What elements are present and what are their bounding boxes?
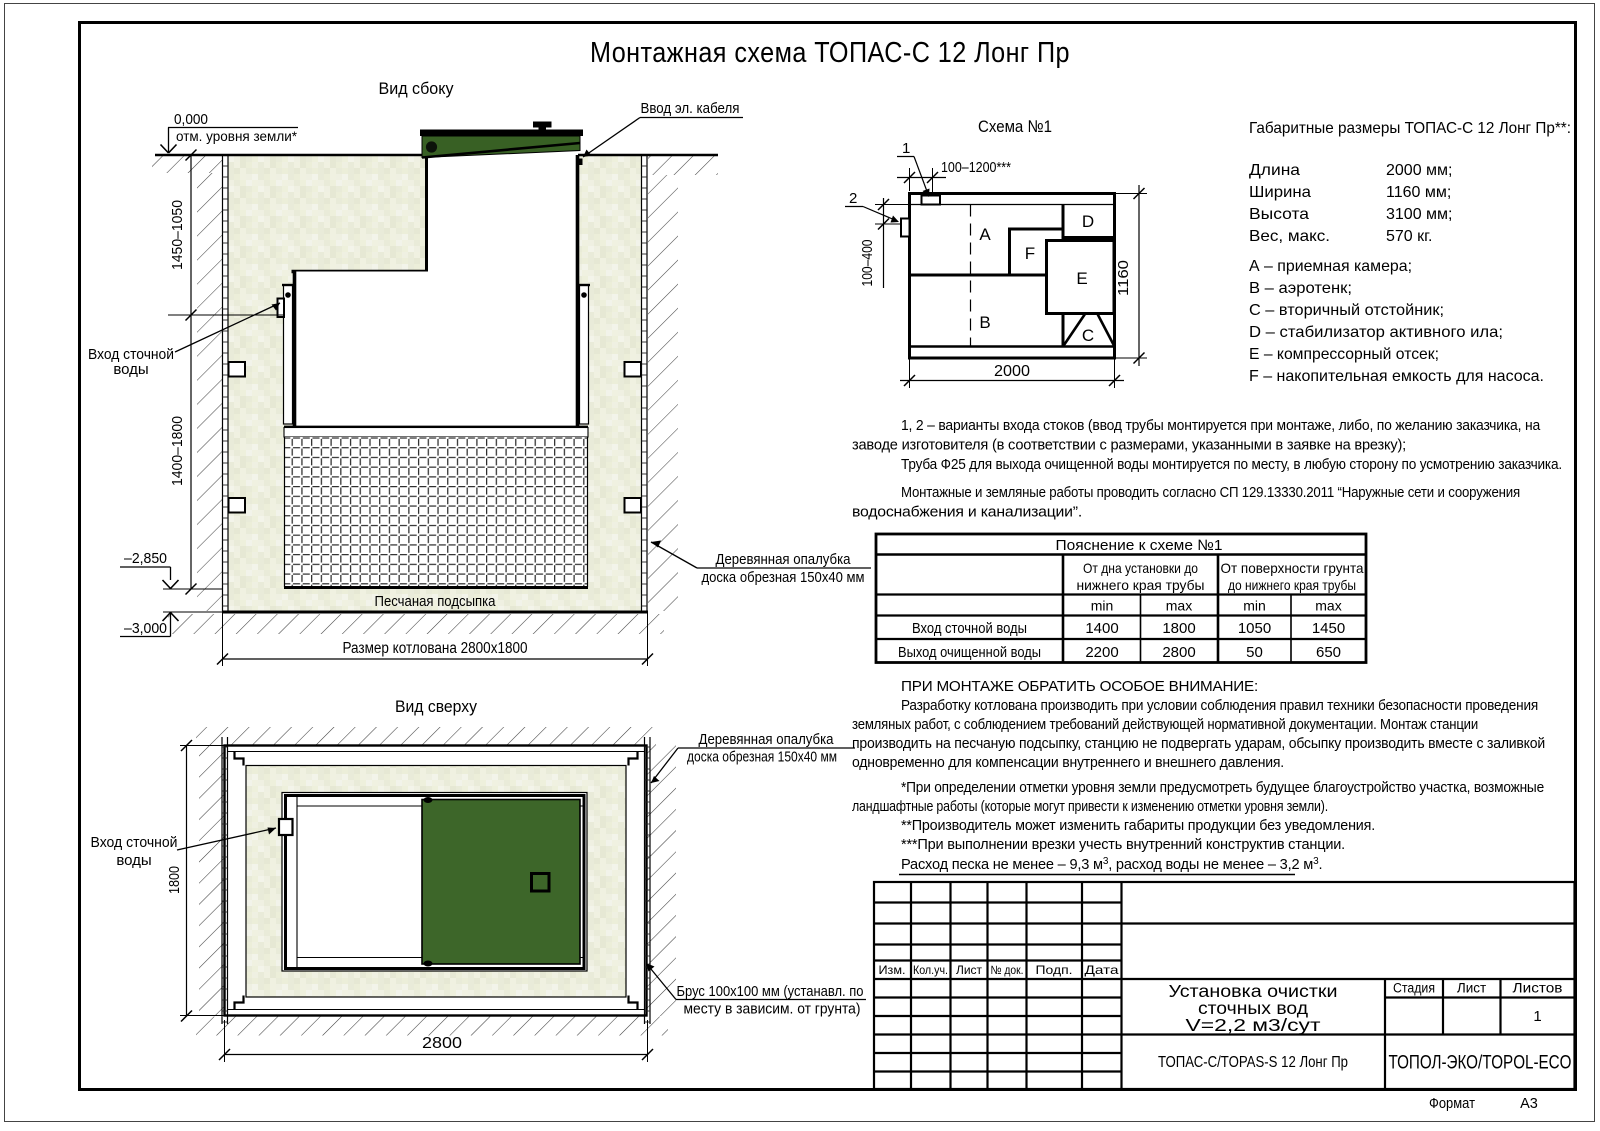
svg-text:1450: 1450 — [1312, 620, 1345, 637]
svg-text:Изм.: Изм. — [879, 963, 906, 977]
svg-text:одновременно для компенсации в: одновременно для компенсации внутреннего… — [852, 755, 1284, 771]
svg-text:D: D — [1082, 212, 1094, 231]
svg-text:Схема №1: Схема №1 — [978, 117, 1052, 136]
svg-text:2800: 2800 — [422, 1035, 462, 1052]
svg-text:воды: воды — [113, 361, 148, 378]
svg-text:Выход очищенной воды: Выход очищенной воды — [898, 644, 1041, 661]
svg-text:1800: 1800 — [166, 866, 183, 894]
svg-text:Пояснение к схеме №1: Пояснение к схеме №1 — [1056, 537, 1223, 554]
svg-text:Песчаная подсыпка: Песчаная подсыпка — [375, 593, 497, 610]
svg-text:Дата: Дата — [1085, 963, 1119, 977]
svg-text:Вид сбоку: Вид сбоку — [379, 79, 454, 98]
svg-text:1400: 1400 — [1085, 620, 1118, 637]
svg-text:Монтажные и земляные работы пр: Монтажные и земляные работы проводить со… — [901, 485, 1520, 501]
svg-text:**Производитель может изменить: **Производитель может изменить габариты … — [901, 818, 1375, 834]
svg-text:Формат: Формат — [1429, 1096, 1475, 1112]
svg-text:От дна установки до: От дна установки до — [1083, 560, 1198, 576]
svg-text:min: min — [1243, 598, 1266, 614]
svg-text:№ док.: № док. — [991, 963, 1024, 977]
svg-text:*При определении отметки уровн: *При определении отметки уровня земли пр… — [901, 780, 1544, 796]
svg-text:доска обрезная 150x40 мм: доска обрезная 150x40 мм — [687, 749, 837, 766]
svg-text:***При выполнении врезки учест: ***При выполнении врезки учесть внутренн… — [901, 837, 1345, 853]
svg-text:месту в зависим. от грунта): месту в зависим. от грунта) — [684, 1001, 861, 1018]
svg-text:доска обрезная 150x40 мм: доска обрезная 150x40 мм — [702, 569, 865, 586]
svg-text:земляных работ, с соблюдением: земляных работ, с соблюдением требований… — [852, 717, 1478, 733]
svg-text:max: max — [1315, 598, 1341, 614]
svg-text:Лист: Лист — [1457, 981, 1486, 996]
svg-text:Вид сверху: Вид сверху — [395, 697, 477, 716]
svg-text:V=2,2 м3/сут: V=2,2 м3/сут — [1186, 1015, 1321, 1035]
svg-text:–2,850: –2,850 — [124, 550, 167, 567]
svg-text:2000 мм;: 2000 мм; — [1386, 162, 1452, 179]
svg-text:B: B — [979, 313, 990, 332]
svg-text:100–1200***: 100–1200*** — [941, 159, 1011, 176]
svg-text:E: E — [1076, 269, 1087, 288]
svg-text:Кол.уч.: Кол.уч. — [913, 963, 948, 977]
svg-text:1050: 1050 — [1238, 620, 1271, 637]
svg-text:Ширина: Ширина — [1249, 184, 1311, 201]
svg-text:Монтажная схема ТОПАС-С 12 Лон: Монтажная схема ТОПАС-С 12 Лонг Пр — [590, 37, 1070, 69]
svg-text:воды: воды — [116, 852, 151, 869]
svg-text:Вход сточной воды: Вход сточной воды — [912, 620, 1027, 637]
svg-text:C: C — [1082, 326, 1094, 345]
svg-text:водоснабжения и канализации”.: водоснабжения и канализации”. — [852, 505, 1082, 521]
svg-text:Е – компрессорный отсек;: Е – компрессорный отсек; — [1249, 346, 1439, 363]
svg-text:ТОПАС-С/TOPAS-S 12 Лонг Пр: ТОПАС-С/TOPAS-S 12 Лонг Пр — [1158, 1054, 1348, 1071]
svg-text:2000: 2000 — [994, 363, 1030, 380]
svg-text:50: 50 — [1246, 644, 1263, 661]
svg-text:ТОПОЛ-ЭКО/TOPOL-ECO: ТОПОЛ-ЭКО/TOPOL-ECO — [1389, 1053, 1572, 1074]
svg-text:1800: 1800 — [1162, 620, 1195, 637]
svg-text:3100 мм;: 3100 мм; — [1386, 206, 1452, 223]
svg-text:Длина: Длина — [1249, 162, 1300, 179]
svg-text:1, 2 – варианты входа стоков: 1, 2 – варианты входа стоков (ввод трубы… — [901, 418, 1541, 434]
svg-text:570 кг.: 570 кг. — [1386, 228, 1432, 245]
svg-text:F – накопительная емкость для: F – накопительная емкость для насоса. — [1249, 368, 1544, 385]
svg-text:А – приемная камера;: А – приемная камера; — [1249, 258, 1412, 275]
svg-text:ПРИ МОНТАЖЕ ОБРАТИТЬ ОСОБОЕ ВН: ПРИ МОНТАЖЕ ОБРАТИТЬ ОСОБОЕ ВНИМАНИЕ: — [901, 678, 1258, 695]
svg-text:0,000: 0,000 — [174, 111, 208, 128]
svg-text:нижнего края трубы: нижнего края трубы — [1077, 577, 1205, 593]
svg-text:A: A — [979, 225, 991, 244]
svg-text:Высота: Высота — [1249, 206, 1309, 223]
svg-text:ландшафтные работы (которые мо: ландшафтные работы (которые могут привес… — [852, 799, 1328, 815]
svg-text:max: max — [1166, 598, 1192, 614]
svg-text:1: 1 — [1533, 1008, 1541, 1025]
svg-text:От поверхности грунта: От поверхности грунта — [1221, 560, 1364, 576]
svg-text:отм. уровня земли*: отм. уровня земли* — [176, 129, 298, 144]
svg-text:Труба Ф25 для выхода очищенной: Труба Ф25 для выхода очищенной воды монт… — [901, 457, 1562, 473]
svg-text:Деревянная опалубка: Деревянная опалубка — [699, 731, 835, 748]
svg-text:Расход песка не менее – 9,3 м3: Расход песка не менее – 9,3 м3, расход в… — [901, 856, 1322, 873]
svg-text:Ввод эл. кабеля: Ввод эл. кабеля — [641, 100, 740, 117]
svg-text:до нижнего края трубы: до нижнего края трубы — [1228, 577, 1356, 593]
svg-text:–3,000: –3,000 — [124, 620, 167, 637]
svg-text:Размер котлована 2800x1800: Размер котлована 2800x1800 — [343, 640, 528, 657]
svg-text:1160: 1160 — [1115, 260, 1132, 296]
svg-text:производить на песчаную подсып: производить на песчаную подсыпку, станци… — [852, 736, 1545, 752]
svg-text:С – вторичный отстойник;: С – вторичный отстойник; — [1249, 302, 1444, 319]
svg-text:заводе изготовителя (в соответ: заводе изготовителя (в соответствии с ра… — [852, 438, 1406, 454]
svg-text:Вес, макс.: Вес, макс. — [1249, 228, 1330, 245]
svg-text:1450–1050: 1450–1050 — [169, 200, 186, 270]
svg-text:А3: А3 — [1520, 1096, 1538, 1112]
svg-text:Деревянная опалубка: Деревянная опалубка — [716, 551, 852, 568]
svg-text:В – аэротенк;: В – аэротенк; — [1249, 280, 1352, 297]
svg-text:Лист: Лист — [956, 963, 983, 977]
svg-text:2200: 2200 — [1085, 644, 1118, 661]
svg-text:Брус 100x100 мм (устанавл. по: Брус 100x100 мм (устанавл. по — [677, 983, 864, 1000]
svg-text:2800: 2800 — [1162, 644, 1195, 661]
svg-text:D – стабилизатор активного ила: D – стабилизатор активного ила; — [1249, 324, 1503, 341]
svg-text:1400–1800: 1400–1800 — [169, 416, 186, 486]
svg-text:Вход сточной: Вход сточной — [91, 834, 178, 851]
svg-text:Разработку котлована производи: Разработку котлована производить при усл… — [901, 698, 1538, 714]
svg-text:F: F — [1025, 244, 1035, 263]
svg-text:Листов: Листов — [1513, 981, 1563, 996]
svg-text:Стадия: Стадия — [1393, 981, 1435, 996]
svg-text:650: 650 — [1316, 644, 1341, 661]
svg-text:100–400: 100–400 — [859, 240, 876, 287]
svg-text:Подп.: Подп. — [1036, 963, 1073, 977]
svg-text:Габаритные размеры ТОПАС-С 12: Габаритные размеры ТОПАС-С 12 Лонг Пр**: — [1249, 120, 1571, 137]
svg-text:1: 1 — [902, 140, 910, 157]
svg-text:1160 мм;: 1160 мм; — [1386, 184, 1451, 201]
svg-text:2: 2 — [849, 190, 857, 207]
svg-text:min: min — [1091, 598, 1114, 614]
